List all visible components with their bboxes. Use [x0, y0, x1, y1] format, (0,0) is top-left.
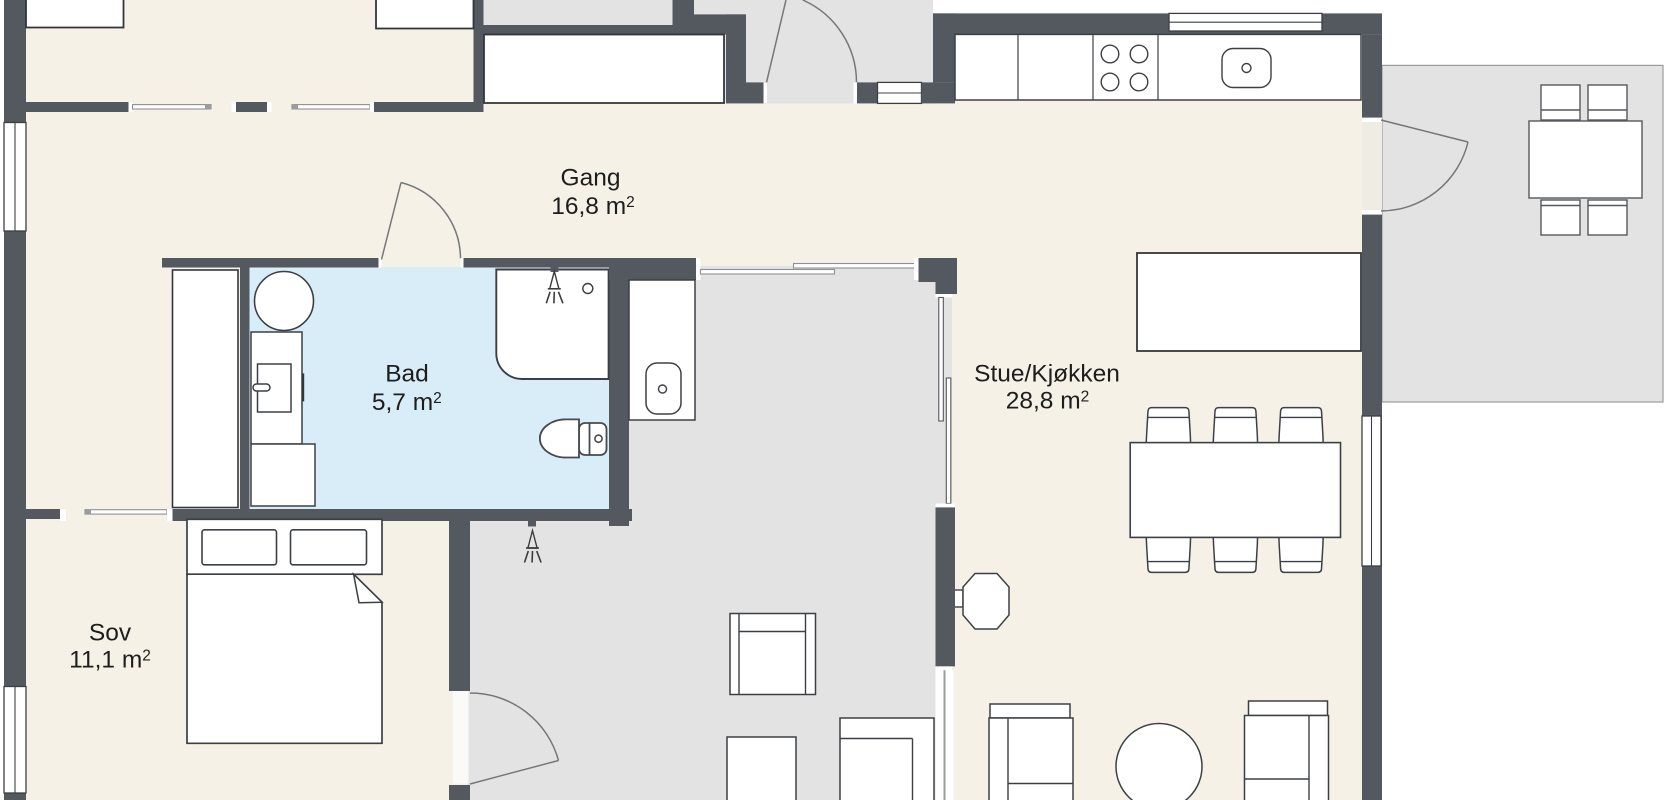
svg-text:11,1 m2: 11,1 m2 [69, 646, 151, 673]
svg-text:28,8 m2: 28,8 m2 [1006, 388, 1090, 415]
svg-text:Stue/Kjøkken: Stue/Kjøkken [974, 361, 1120, 388]
svg-text:Gang: Gang [561, 165, 621, 192]
svg-text:Sov: Sov [89, 620, 132, 647]
svg-text:16,8 m2: 16,8 m2 [551, 193, 635, 220]
svg-text:Bad: Bad [385, 361, 429, 388]
svg-text:5,7 m2: 5,7 m2 [372, 389, 442, 416]
